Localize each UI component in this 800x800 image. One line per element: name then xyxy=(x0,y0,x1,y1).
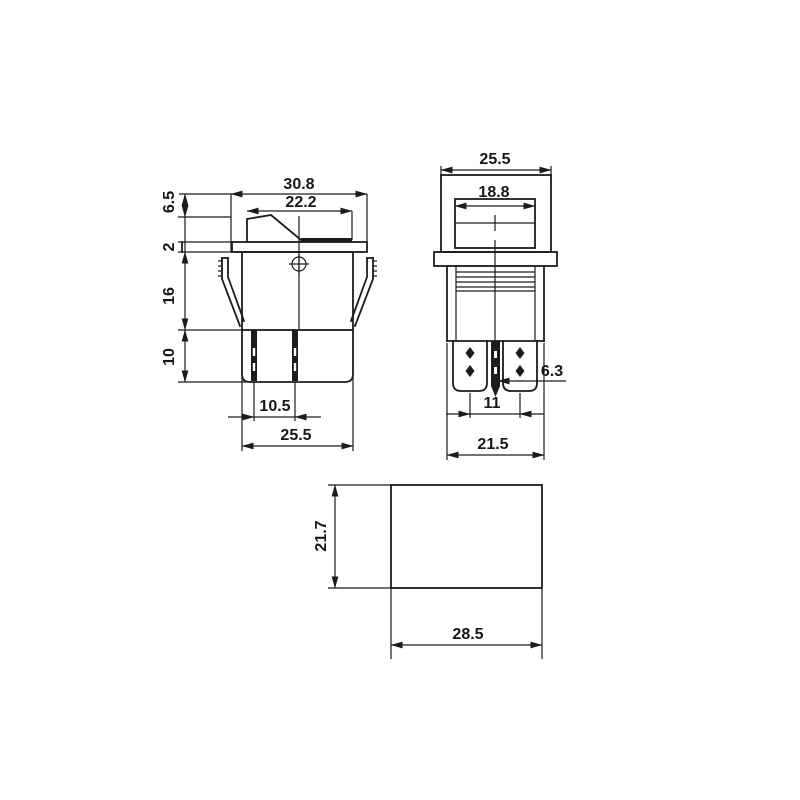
terminal-tab-right xyxy=(503,341,537,391)
dim-label: 18.8 xyxy=(478,184,509,201)
clip-outer-edge xyxy=(222,258,240,326)
terminal-slot xyxy=(494,367,497,374)
diamond-hole xyxy=(516,347,525,359)
dim-label: 10.5 xyxy=(259,398,290,415)
dim-label: 21.5 xyxy=(477,436,508,453)
dim-label: 25.5 xyxy=(479,151,510,168)
latch-clip-left xyxy=(218,258,244,326)
dim-chain-left: 6.5 2 16 10 xyxy=(161,191,246,382)
dim-label: 22.2 xyxy=(285,194,316,211)
terminal-slot xyxy=(253,363,255,371)
terminal-bar xyxy=(491,341,500,386)
dim-label: 11 xyxy=(484,395,501,412)
dim-label: 28.5 xyxy=(452,626,483,643)
diamond-hole xyxy=(466,365,475,377)
drawing-sheet: 30.8 22.2 6.5 2 16 10 xyxy=(0,0,800,800)
diamond-hole xyxy=(466,347,475,359)
switch-technical-drawing: 30.8 22.2 6.5 2 16 10 xyxy=(0,0,800,800)
dim-cutout-width: 28.5 xyxy=(391,626,542,645)
rocker-profile xyxy=(247,215,301,242)
terminal-slot xyxy=(294,363,296,371)
terminal-row-left xyxy=(251,330,257,381)
terminal-slot xyxy=(494,351,497,358)
cutout-view: 21.7 28.5 xyxy=(313,485,542,659)
dim-actuator-width: 18.8 xyxy=(455,184,535,206)
dim-label-terminal-length: 10 xyxy=(161,348,178,366)
terminal-slot xyxy=(294,348,296,356)
dim-side-top-width: 25.5 xyxy=(441,151,551,177)
dim-label-body-height: 16 xyxy=(161,287,178,305)
dim-label: 30.8 xyxy=(283,176,314,193)
diamond-hole xyxy=(516,365,525,377)
dim-cutout-height: 21.7 xyxy=(313,485,335,588)
pivot-mark xyxy=(289,254,309,274)
latch-clip-right xyxy=(351,258,377,326)
terminal-tab-left xyxy=(453,341,487,391)
dim-pin-spacing: 11 xyxy=(446,393,544,418)
dim-label: 25.5 xyxy=(280,427,311,444)
side-view: 25.5 18.8 6.3 11 21.5 xyxy=(434,151,566,460)
dim-label: 21.7 xyxy=(313,520,330,551)
dim-label-rocker-height: 6.5 xyxy=(161,191,178,213)
cutout-outline xyxy=(391,485,542,588)
dim-terminal-width: 6.3 xyxy=(498,363,566,381)
terminal-row-right xyxy=(292,330,298,381)
terminal-slot xyxy=(253,348,255,356)
clip-outer-edge xyxy=(355,258,373,326)
dim-label-bezel-thickness: 2 xyxy=(161,242,178,251)
front-view: 30.8 22.2 6.5 2 16 10 xyxy=(161,176,377,451)
terminal-center xyxy=(491,341,500,397)
